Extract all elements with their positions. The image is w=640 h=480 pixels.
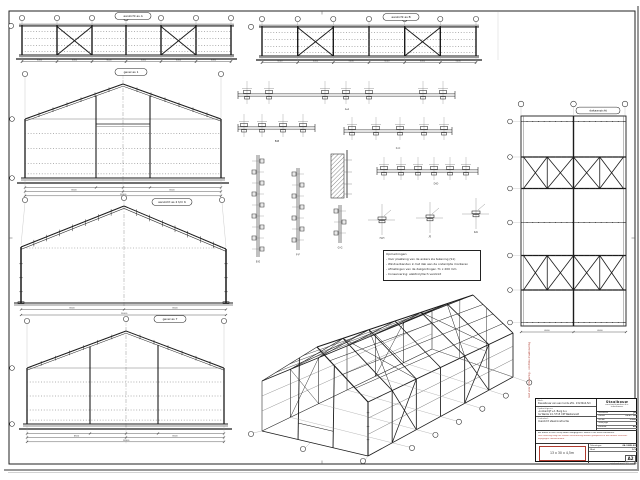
drawing-line: [126, 331, 224, 368]
drawing-sheet: 500050005000500050005000aanzicht as A 50…: [0, 0, 640, 480]
dim-label: 6500: [169, 190, 175, 192]
grid-bubble: [89, 15, 94, 20]
part-value: Overzicht staalconstructie: [538, 420, 595, 423]
drawing-line: [25, 84, 123, 119]
grid-bubble: [221, 318, 226, 323]
grid-bubble: [300, 446, 305, 451]
disclaimer-band: Alle maten in mm, tenzij anders aangegev…: [536, 430, 637, 443]
grid-bubble: [248, 24, 253, 29]
detail-label: F-F: [296, 253, 300, 257]
view-title: aanzicht as B: [391, 15, 410, 19]
grid-bubble: [228, 15, 233, 20]
title-block-project-area: Werk: Nieuwbouw van een loods afm. 13x30…: [536, 399, 597, 430]
field-value: A2: [633, 426, 636, 429]
dim-label: 13000: [121, 313, 128, 315]
grid-bubble: [508, 253, 513, 258]
detail-label: E-E: [256, 260, 260, 264]
grid-bubble: [503, 393, 508, 398]
grid-bubble: [10, 117, 15, 122]
connection-details: A-AB-BC-CD-DE-EF-FG-GH-HJ-JK-K: [238, 81, 489, 264]
dim-label: 5000: [456, 61, 462, 63]
grid-bubble: [508, 186, 513, 191]
detail-label: H-H: [380, 236, 385, 240]
dim-label: 6500: [172, 308, 178, 310]
field-label: Schaal: [598, 419, 605, 422]
number-cells: Tekeningnr. 04-1185-S2 Blad 1/1 A2: [588, 444, 637, 463]
grid-bubble: [248, 431, 253, 436]
front-gable-view: 6500650013000gevel as 1: [10, 69, 229, 198]
grid-bubble: [8, 23, 13, 28]
disclaimer-line-red: Wijzigingen voorbehouden.: [538, 438, 636, 441]
drawing-line: [303, 299, 463, 356]
grid-bubble: [24, 318, 29, 323]
grid-bubble: [121, 195, 126, 200]
grid-bubble: [473, 16, 478, 21]
grid-bubble: [193, 15, 198, 20]
drawing-line: [21, 203, 25, 245]
grid-bubble: [508, 288, 513, 293]
grid-bubble: [433, 432, 438, 437]
dim-label: 5000: [72, 60, 78, 62]
grid-bubble: [508, 220, 513, 225]
grid-bubble: [571, 101, 577, 107]
grid-bubble: [158, 15, 163, 20]
view-title: dakaanzicht: [589, 109, 607, 113]
drawing-line: [343, 314, 494, 375]
drawing-line: [25, 86, 123, 121]
detail-label: C-C: [396, 146, 401, 150]
title-block-footer: getekend met CAD - wijz. 0: [535, 463, 637, 465]
grid-bubble: [54, 15, 59, 20]
dim-label: 5000: [384, 61, 390, 63]
drawing-line: [290, 369, 318, 403]
dim-label: 5000: [349, 61, 355, 63]
drawing-line: [369, 330, 392, 391]
portal-frame-view: 6500650013000aanzicht as 2 t/m 6: [14, 195, 233, 316]
grid-bubble: [518, 101, 524, 107]
field-value: JR: [634, 412, 636, 415]
title-block-meta-area: Staalbouw constructiewerken b.v. tekenka…: [597, 399, 637, 430]
company-sub2: tekenkamer: [597, 406, 637, 408]
roof-bracing-plan-view: 65006500dakaanzicht: [508, 101, 628, 333]
dim-label: 5000: [106, 60, 112, 62]
field-label: Datum: [598, 415, 605, 418]
grid-bubble: [123, 316, 128, 321]
grid-bubble: [438, 16, 443, 21]
grid-bubble: [360, 458, 365, 463]
drawing-line: [347, 390, 456, 421]
dim-label: 13000: [123, 440, 130, 442]
sheet-edge-shadow-bottom: [4, 469, 638, 471]
grid-bubble: [10, 176, 15, 181]
drawing-line: [365, 456, 368, 460]
notes-item: - Conservering: elektrolytisch verzinkt: [386, 272, 478, 277]
grid-bubble: [22, 197, 27, 202]
grid-bubble: [409, 445, 414, 450]
detail-label: G-G: [338, 246, 343, 250]
field-label: Gewijzigd: [598, 422, 608, 425]
dim-label: 6500: [544, 330, 550, 332]
drawing-line: [375, 376, 480, 408]
drawing-line: [333, 366, 334, 448]
drawing-line: [27, 331, 126, 368]
field-row: Formaat A2: [597, 426, 637, 430]
sheet-edge-shadow-bottom-light: [8, 472, 638, 473]
title-block: Werk: Nieuwbouw van een loods afm. 13x30…: [535, 398, 637, 462]
drawing-line: [460, 342, 487, 351]
drawing-line: [290, 330, 369, 370]
grid-bubble: [295, 16, 300, 21]
drawing-line: [319, 338, 343, 357]
grid-bubble: [456, 419, 461, 424]
drawing-line: [432, 208, 439, 214]
grid-bubble: [10, 366, 15, 371]
drawing-number: 04-1185-S2: [622, 444, 635, 447]
wall-hatch-detail: [331, 154, 344, 198]
dim-label: 6500: [74, 436, 80, 438]
field-label: Getekend: [598, 412, 608, 415]
company-logo-block: Staalbouw constructiewerken b.v. tekenka…: [597, 399, 637, 412]
rear-gable-view: 6500650013000gevel as 7: [10, 316, 232, 444]
dim-label: 5000: [277, 61, 283, 63]
drawing-line: [298, 423, 333, 431]
notes-box: Opmerkingen: - Voor plaatsing van de ank…: [383, 250, 481, 281]
drawing-line: [27, 333, 126, 370]
drawing-line: [123, 86, 221, 121]
drawing-line: [384, 210, 391, 216]
grid-bubble: [259, 16, 264, 21]
drawing-line: [375, 304, 447, 335]
field-label: Formaat: [598, 426, 606, 429]
detail-label: J-J: [428, 234, 432, 238]
grid-bubble: [22, 71, 27, 76]
grid-bubble: [508, 155, 513, 160]
sheet-number: 1/1: [632, 448, 636, 451]
drawing-line: [290, 417, 409, 447]
view-title: gevel as 7: [163, 317, 178, 321]
drawing-line: [276, 307, 443, 373]
grid-bubble: [331, 16, 336, 21]
drawing-line: [253, 431, 262, 433]
grid-bubble: [218, 71, 223, 76]
client-address: De Weide 14, 5715 CM Westerveld: [538, 413, 595, 416]
dim-label: 6500: [172, 436, 178, 438]
drawing-line: [478, 204, 485, 210]
grid-bubble: [10, 422, 15, 427]
building-size-box: 13 x 30 x 4,5m: [539, 446, 586, 461]
detail-label: D-D: [434, 182, 439, 186]
sheet-number-row: Blad 1/1: [589, 448, 637, 452]
view-title: gevel as 1: [124, 70, 139, 74]
grid-bubble: [366, 16, 371, 21]
field-value: 12-07-'04: [625, 415, 636, 418]
grid-bubble: [508, 119, 513, 124]
view-title: aanzicht as A: [123, 14, 142, 18]
sheet-label: Blad: [590, 448, 595, 451]
drawing-line: [123, 84, 221, 119]
grid-bubble: [480, 406, 485, 411]
drawing-line: [421, 312, 489, 344]
field-value: 1:100: [629, 419, 635, 422]
dim-label: 5000: [37, 60, 43, 62]
view-title: aanzicht as 2 t/m 6: [158, 200, 186, 204]
revision-stamp: niet voor uitvoering - controle maatvoer…: [528, 340, 531, 398]
drawing-line: [126, 333, 224, 370]
drawing-line: [375, 323, 403, 377]
drawing-line: [305, 443, 310, 448]
dim-label: 5000: [313, 61, 319, 63]
dim-label: 6500: [597, 330, 603, 332]
drawing-line: [447, 304, 465, 356]
field-value: -: [635, 422, 636, 425]
title-block-bottom: 13 x 30 x 4,5m Tekeningnr. 04-1185-S2 Bl…: [536, 443, 637, 462]
grid-bubble: [219, 197, 224, 202]
dim-label: 6500: [69, 308, 75, 310]
dim-label: 5000: [420, 61, 426, 63]
drawing-line: [319, 404, 433, 434]
grid-bubble: [622, 101, 628, 107]
dim-label: 5000: [211, 60, 217, 62]
drawing-line: [262, 334, 432, 411]
grid-bubble: [19, 15, 24, 20]
detail-label: A-A: [345, 107, 350, 111]
dim-label: 5000: [141, 60, 147, 62]
dim-label: 5000: [176, 60, 182, 62]
grid-bubble: [508, 320, 513, 325]
drawing-line: [343, 338, 416, 379]
side-elevation-b-view: 500050005000500050005000aanzicht as B: [248, 14, 482, 64]
sheet-edge-shadow-right: [637, 6, 639, 471]
isometric-3d-view: [248, 295, 531, 464]
drawing-line: [262, 431, 368, 456]
detail-label: B-B: [275, 139, 280, 143]
dim-label: 6500: [71, 190, 77, 192]
work-value: Nieuwbouw van een loods afm. 13x30x4,5m: [538, 402, 595, 405]
drawing-number-label: Tekeningnr.: [590, 444, 602, 447]
detail-label: K-K: [474, 230, 478, 234]
paper-format-badge: A2: [625, 455, 636, 462]
drawing-line: [222, 203, 226, 247]
side-elevation-a-view: 500050005000500050005000aanzicht as A: [8, 13, 237, 63]
